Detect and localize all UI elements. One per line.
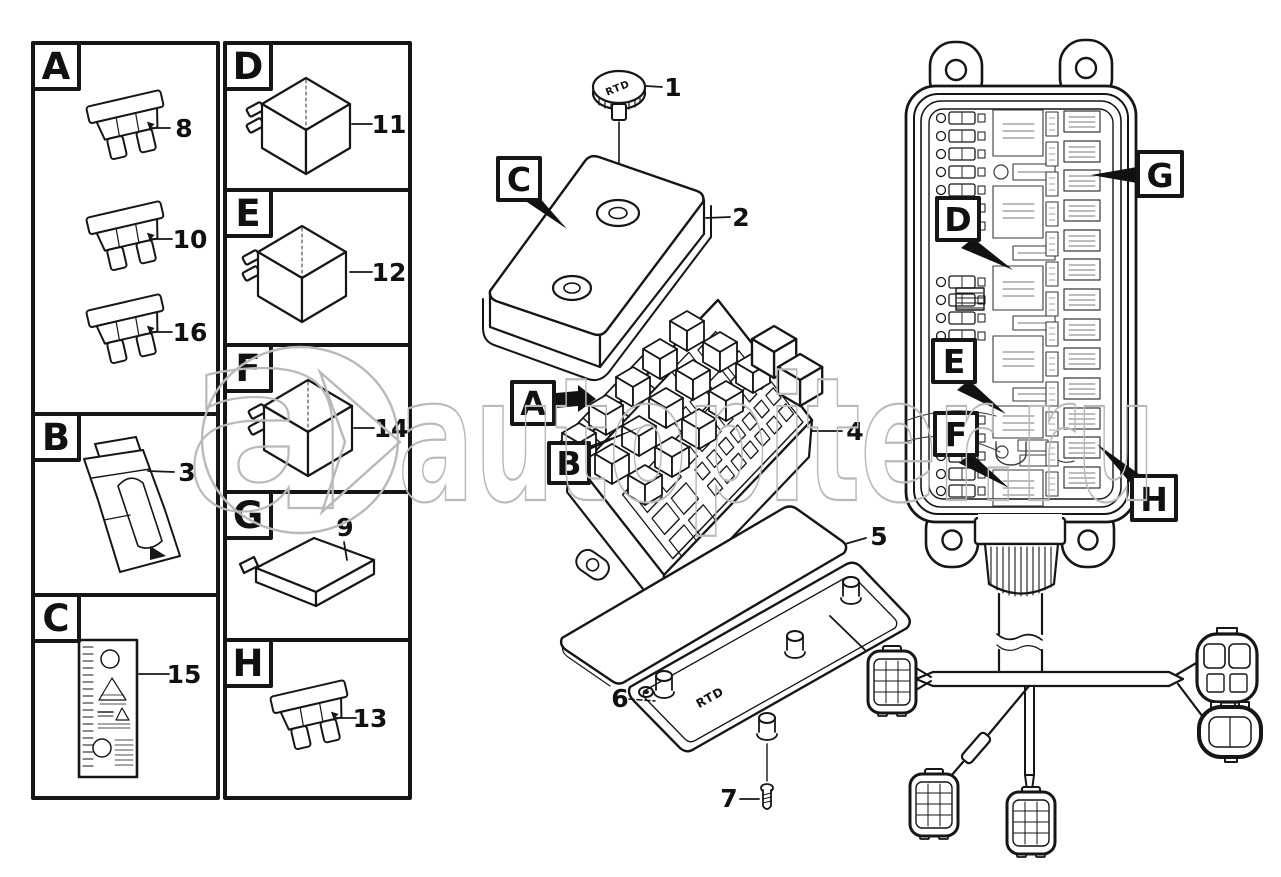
- part-number-11: 11: [372, 110, 407, 139]
- part-number-6: 6: [611, 684, 628, 713]
- part-number-2: 2: [732, 203, 749, 232]
- diagram-artwork: A B C D E F G H 8 10 16 3 15 11 12 14 9 …: [0, 0, 1281, 877]
- screw-icon: [761, 744, 773, 809]
- harness-connector-left: [868, 646, 916, 716]
- legend-letter-e: E: [235, 192, 260, 235]
- callout-letter-g: G: [1146, 156, 1173, 195]
- parts-diagram-page: A B C D E F G H 8 10 16 3 15 11 12 14 9 …: [0, 0, 1281, 877]
- legend-letter-d: D: [233, 45, 264, 88]
- legend-letter-b: B: [42, 416, 70, 459]
- part-number-8: 8: [175, 114, 192, 143]
- harness-connector-bottom-left: [910, 769, 958, 839]
- part-number-15: 15: [167, 660, 202, 689]
- part-number-1: 1: [664, 73, 681, 102]
- part-number-10: 10: [173, 225, 208, 254]
- callout-letter-c: C: [507, 160, 531, 199]
- legend-letter-a: A: [42, 45, 71, 88]
- part-number-12: 12: [372, 258, 407, 287]
- harness-connector-right-bottom: [1199, 702, 1261, 762]
- mounting-hole: [1076, 58, 1096, 78]
- part-number-13: 13: [353, 704, 388, 733]
- legend-letter-h: H: [233, 642, 264, 685]
- harness-connector-bottom-center: [1007, 787, 1055, 857]
- harness-connector-right-top: [1197, 628, 1257, 707]
- watermark-logo-letter: a: [184, 276, 353, 567]
- wiring-harness: [868, 628, 1261, 857]
- legend-letter-c: C: [42, 597, 69, 640]
- warning-label-icon: [79, 640, 137, 777]
- callout-letter-d: D: [944, 200, 971, 239]
- mounting-hole: [946, 60, 966, 80]
- part-number-7: 7: [720, 784, 737, 813]
- watermark-text: autopiter.ru: [398, 340, 1156, 541]
